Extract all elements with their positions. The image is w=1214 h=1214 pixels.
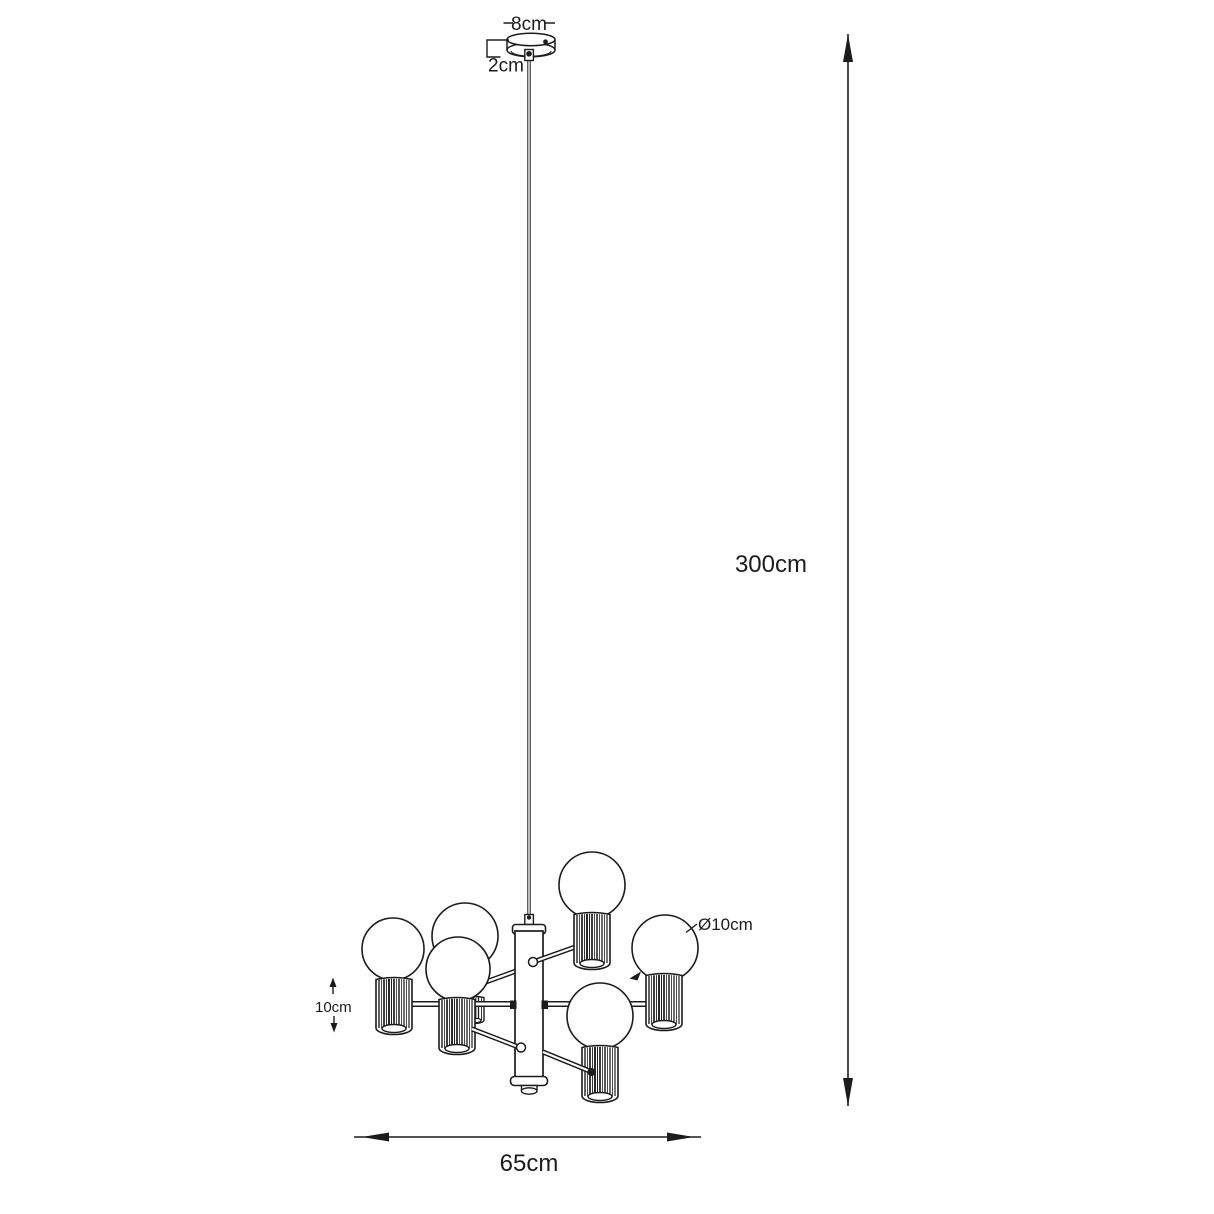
dim-canopy-width-label: 8cm: [511, 14, 547, 35]
dim-shade-height: 10cm: [315, 978, 352, 1033]
dim-shade-height-label: 10cm: [315, 999, 352, 1016]
leader-arrow: [630, 972, 642, 981]
dim-drop-height-label: 300cm: [735, 551, 807, 578]
arrow-up: [843, 34, 853, 62]
socket-top-right: [574, 913, 610, 970]
bulb-front-left: [426, 937, 490, 1001]
socket-front-left: [439, 998, 475, 1055]
dim-canopy-width: 8cm: [504, 14, 556, 35]
socket-far-left: [376, 978, 412, 1035]
canopy-top: [507, 33, 555, 45]
arrow-down: [843, 1078, 853, 1106]
arrow-up-small: [330, 978, 337, 988]
dim-fixture-width-label: 65cm: [500, 1150, 559, 1177]
bulb-bottom-center: [567, 983, 633, 1049]
column-body: [515, 931, 543, 1078]
central-column: [511, 925, 548, 1095]
dim-fixture-width: 65cm: [354, 1133, 701, 1178]
dim-bulb-diameter-label: Ø10cm: [698, 915, 753, 934]
cord-connector: [525, 915, 534, 925]
bulb-top-right: [559, 852, 625, 918]
arrow-left: [362, 1133, 389, 1142]
socket-far-right: [646, 974, 682, 1031]
arm-joint-ball: [517, 1043, 526, 1052]
bulb-far-right: [632, 915, 698, 981]
socket-bottom-center: [582, 1046, 618, 1103]
chandelier-dimension-drawing: 8cm 2cm 300cm 65cm 10cm: [0, 0, 1214, 1214]
canopy-screw: [543, 39, 548, 44]
arrow-right: [667, 1133, 694, 1142]
dim-drop-height: 300cm: [735, 34, 853, 1106]
dim-canopy-height-label: 2cm: [488, 56, 524, 77]
bar-nub-left: [510, 1001, 517, 1010]
cord-grip-screw: [526, 51, 532, 57]
column-finial-knob: [521, 1088, 537, 1094]
bulb-far-left: [362, 918, 424, 980]
diagram-canvas: 8cm 2cm 300cm 65cm 10cm: [0, 0, 1214, 1214]
bar-nub-right: [542, 1001, 549, 1010]
column-bottom-flange: [511, 1077, 548, 1086]
arm-end-ball: [588, 1068, 596, 1076]
arrow-down-small: [331, 1023, 338, 1033]
arm-joint-ball: [529, 958, 538, 967]
